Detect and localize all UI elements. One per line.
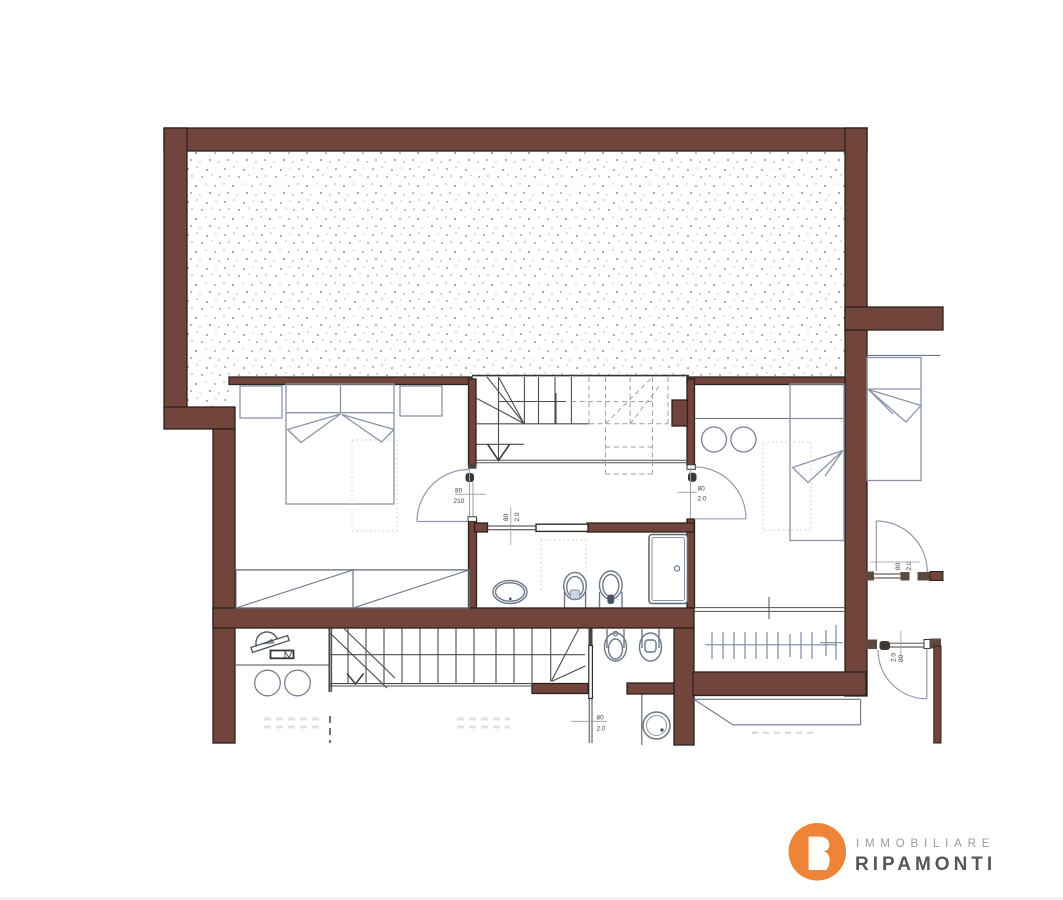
svg-text:2.0: 2.0 [698, 496, 707, 503]
svg-text:80: 80 [895, 562, 902, 570]
svg-text:80: 80 [597, 715, 605, 722]
svg-text:2.0: 2.0 [514, 512, 521, 521]
svg-text:IMMOBILIARE: IMMOBILIARE [856, 838, 995, 850]
svg-text:RIPAMONTI: RIPAMONTI [855, 854, 996, 875]
svg-text:80: 80 [898, 654, 905, 662]
svg-text:2.0: 2.0 [597, 726, 606, 733]
svg-text:210: 210 [454, 498, 465, 505]
svg-text:2.0: 2.0 [891, 653, 898, 662]
svg-text:80: 80 [698, 486, 706, 493]
svg-text:80: 80 [503, 513, 510, 521]
svg-text:2.0: 2.0 [906, 561, 913, 570]
svg-text:80: 80 [455, 488, 463, 495]
